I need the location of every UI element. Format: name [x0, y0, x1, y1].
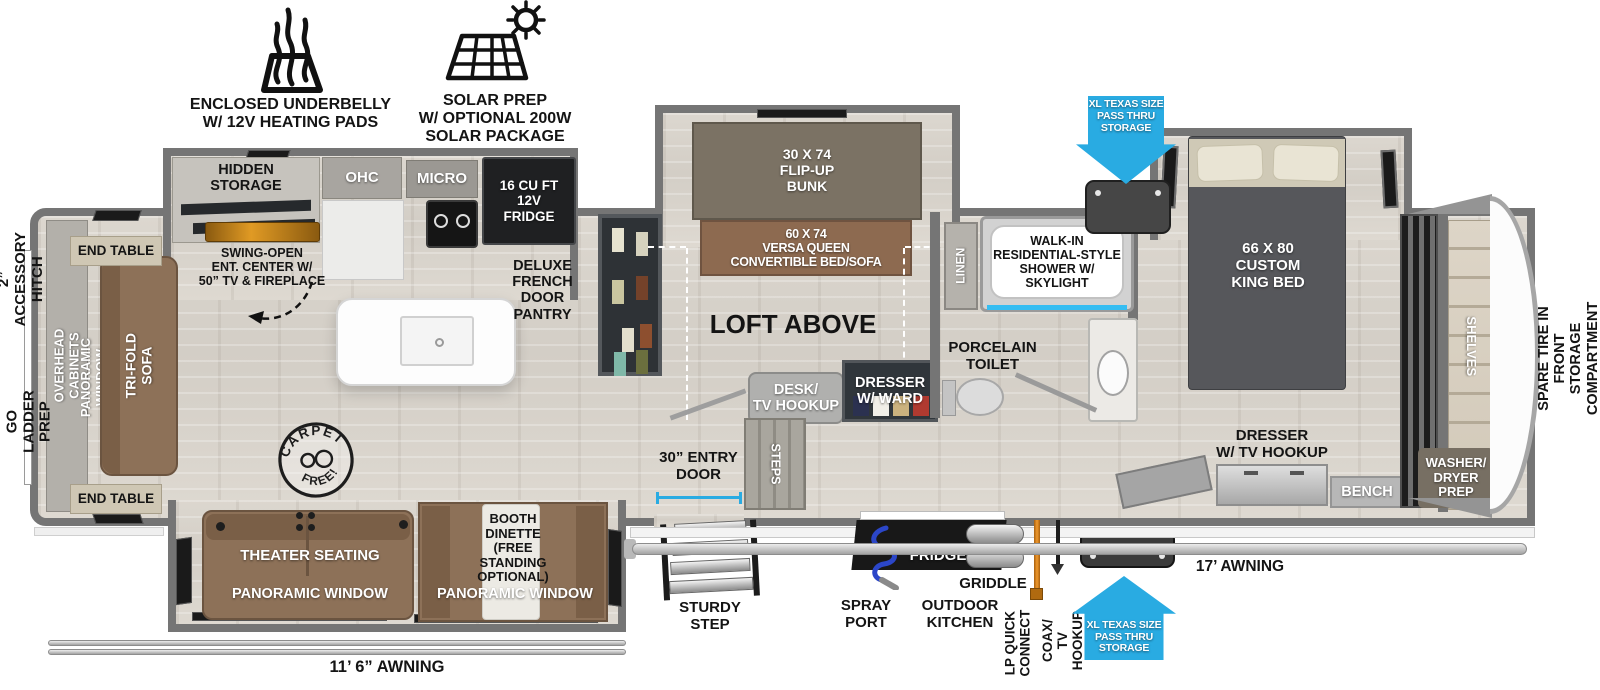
- solar-prep-icon: [428, 0, 560, 92]
- body-skirt: [630, 527, 1535, 538]
- booth-dinette-label: BOOTH DINETTE (FREE STANDING OPTIONAL): [464, 512, 562, 585]
- loft-above-label: LOFT ABOVE: [698, 310, 888, 339]
- closet-shelves: SHELVES: [1456, 296, 1486, 396]
- tri-fold-sofa-label: TRI-FOLD SOFA: [123, 329, 154, 403]
- booth-dinette: BOOTH DINETTE (FREE STANDING OPTIONAL) P…: [418, 502, 608, 622]
- solar-label: SOLAR PREP W/ OPTIONAL 200W SOLAR PACKAG…: [395, 92, 595, 146]
- coax-tv-hookup: COAX/ TV HOOKUP: [1038, 592, 1088, 690]
- dresser-ward: DRESSER W/ WARD: [842, 360, 938, 422]
- burner: [434, 214, 448, 228]
- kitchen-fridge: 16 CU FT 12V FRIDGE: [482, 157, 576, 245]
- awning-17-label: 17’ AWNING: [1180, 558, 1300, 575]
- bedroom-dresser: [1216, 464, 1328, 506]
- spare-tire-note: SPARE TIRE IN FRONT STORAGE COMPARTMENT: [1542, 224, 1596, 492]
- desk-tv-hookup: DESK/ TV HOOKUP: [748, 372, 844, 424]
- shower-label: WALK-IN RESIDENTIAL-STYLE SHOWER W/ SKYL…: [993, 234, 1121, 290]
- desk-label: DESK/ TV HOOKUP: [753, 382, 839, 414]
- lp-hose: [1034, 520, 1040, 592]
- griddle-tray: [966, 524, 1024, 544]
- underbelly-label: ENCLOSED UNDERBELLY W/ 12V HEATING PADS: [148, 96, 433, 132]
- loft-boundary: [686, 248, 688, 420]
- end-table-top-label: END TABLE: [78, 243, 154, 258]
- shower-glass: [987, 305, 1127, 310]
- cooktop: [426, 200, 478, 248]
- window-icon: [757, 109, 847, 118]
- outdoor-kitchen-lid: [860, 511, 1005, 520]
- bunk-label: 30 X 74 FLIP-UP BUNK: [780, 147, 834, 194]
- coax-label: COAX/ TV HOOKUP: [1040, 611, 1085, 670]
- king-bed-label: 66 X 80 CUSTOM KING BED: [1189, 241, 1347, 291]
- sofa-back: [102, 258, 120, 474]
- pillow: [1196, 144, 1263, 182]
- hidden-storage-label: HIDDEN STORAGE: [173, 162, 319, 194]
- cupholder: [296, 512, 303, 519]
- loft-boundary: [648, 246, 686, 248]
- heating-pads-icon: [222, 2, 354, 94]
- ohc-label: OHC: [345, 170, 378, 187]
- microwave: MICRO: [406, 160, 478, 198]
- bath-wall: [930, 212, 940, 418]
- entertainment-center: [205, 222, 320, 242]
- pass-thru-hatch-top: [1085, 180, 1171, 234]
- tri-fold-sofa: TRI-FOLD SOFA: [100, 256, 178, 476]
- ladder-prep: ON-THE-GO LADDER PREP: [0, 348, 42, 496]
- fridge-label: 16 CU FT 12V FRIDGE: [500, 178, 559, 223]
- coax-plug: [1051, 564, 1064, 575]
- flip-up-bunk: 30 X 74 FLIP-UP BUNK: [692, 122, 922, 220]
- storage-shelf: [181, 200, 311, 216]
- window-icon: [608, 529, 622, 607]
- loft-boundary: [903, 248, 905, 368]
- pass-thru-arrow-bottom: XL TEXAS SIZE PASS THRU STORAGE: [1072, 576, 1176, 660]
- floorplan-diagram: ENCLOSED UNDERBELLY W/ 12V HEATING PADS …: [0, 0, 1600, 690]
- bench: BENCH: [1330, 476, 1404, 508]
- pass-thru-bottom-label: XL TEXAS SIZE PASS THRU STORAGE: [1087, 620, 1162, 655]
- theater-panoramic-label: PANORAMIC WINDOW: [198, 586, 422, 602]
- faucet: [435, 338, 444, 347]
- step-tread: [669, 577, 754, 594]
- window-icon: [92, 210, 142, 221]
- island-sink: [400, 316, 474, 366]
- end-table-bottom: END TABLE: [70, 484, 162, 514]
- sturdy-step-label: STURDY STEP: [660, 600, 760, 634]
- toilet-bowl: [956, 378, 1004, 416]
- screw-icon: [1095, 190, 1101, 196]
- spray-port-hose-icon: [866, 524, 902, 590]
- dinette-panoramic-label: PANORAMIC WINDOW: [420, 586, 610, 602]
- lp-quick-connect-label: LP QUICK CONNECT: [1002, 610, 1032, 677]
- versa-queen-bed: 60 X 74 VERSA QUEEN CONVERTIBLE BED/SOFA: [700, 220, 912, 276]
- body-skirt: [34, 527, 164, 536]
- toilet-label: PORCELAIN TOILET: [940, 340, 1045, 374]
- linen-closet: LINEN: [944, 222, 978, 310]
- spray-port-label: SPRAY PORT: [826, 598, 906, 632]
- end-table-top: END TABLE: [70, 236, 162, 266]
- bedroom-dresser-label: DRESSER W/ TV HOOKUP: [1202, 428, 1342, 462]
- end-table-bottom-label: END TABLE: [78, 491, 154, 506]
- spare-tire-label: SPARE TIRE IN FRONT STORAGE COMPARTMENT: [1537, 301, 1600, 414]
- theater-seating: THEATER SEATING PANORAMIC WINDOW: [202, 510, 414, 620]
- entry-door-measure: [656, 496, 742, 499]
- king-bed: 66 X 80 CUSTOM KING BED: [1188, 136, 1346, 390]
- window-icon: [92, 514, 143, 524]
- off-door-awning: [48, 649, 626, 655]
- versa-queen-label: 60 X 74 VERSA QUEEN CONVERTIBLE BED/SOFA: [731, 227, 882, 269]
- griddle-label: GRIDDLE: [948, 576, 1038, 593]
- steps-label: STEPS: [768, 444, 782, 485]
- window-icon: [176, 537, 192, 605]
- hitch-label: 2” ACCESSORY HITCH: [0, 232, 46, 326]
- drawer-handle: [1244, 471, 1258, 475]
- cupholder: [216, 522, 225, 531]
- bedroom-window: [1380, 150, 1398, 209]
- micro-label: MICRO: [417, 171, 467, 188]
- pantry-label: DELUXE FRENCH DOOR PANTRY: [490, 258, 595, 323]
- washer-dryer-label: WASHER/ DRYER PREP: [1426, 456, 1487, 500]
- pantry-cabinet: [598, 214, 662, 376]
- lp-quick-connect: LP QUICK CONNECT: [994, 596, 1040, 690]
- pantry-items: [612, 228, 624, 252]
- entry-door-label: 30” ENTRY DOOR: [636, 450, 761, 484]
- accessory-hitch: 2” ACCESSORY HITCH: [0, 204, 42, 354]
- step-tread: [670, 558, 751, 575]
- bench-label: BENCH: [1341, 484, 1393, 500]
- swing-arrow-icon: [240, 278, 318, 330]
- pillow: [1272, 144, 1339, 182]
- ladder-prep-label: ON-THE-GO LADDER PREP: [0, 391, 55, 454]
- shelves-label: SHELVES: [1464, 316, 1479, 376]
- overhead-cabinet-ohc: OHC: [322, 157, 402, 199]
- door-side-awning: [632, 543, 1527, 555]
- shower-pan: WALK-IN RESIDENTIAL-STYLE SHOWER W/ SKYL…: [990, 225, 1124, 299]
- awning-11-label: 11’ 6” AWNING: [302, 658, 472, 676]
- screw-icon: [1155, 190, 1161, 196]
- burner: [456, 214, 470, 228]
- dresser-ward-label: DRESSER W/ WARD: [855, 375, 925, 407]
- linen-label: LINEN: [954, 248, 967, 284]
- off-door-awning: [48, 640, 626, 646]
- toilet-tank: [942, 380, 956, 416]
- theater-seating-label: THEATER SEATING: [204, 548, 416, 565]
- kitchen-island: [336, 298, 516, 386]
- vanity-sink: [1097, 350, 1129, 396]
- seat-divider: [306, 516, 309, 576]
